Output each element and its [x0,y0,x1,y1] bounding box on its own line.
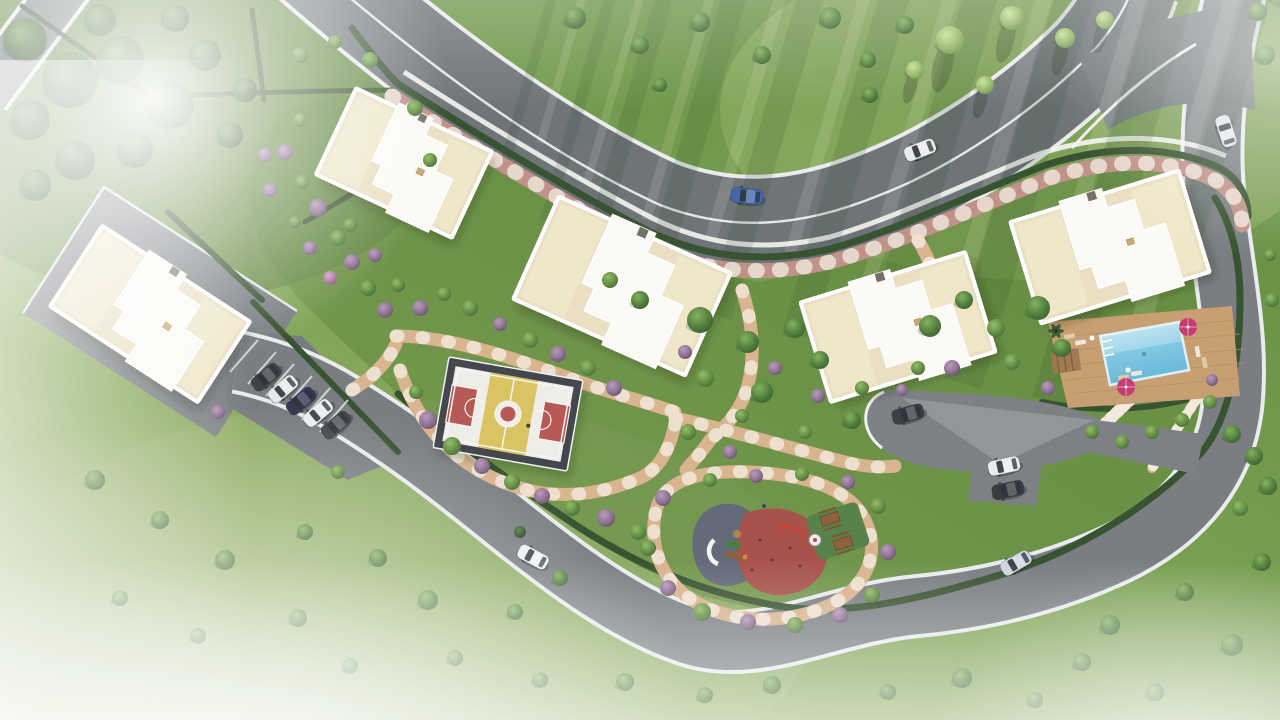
bush [696,369,714,387]
flowering-bush [1206,374,1218,386]
flowering-bush [534,488,550,504]
tree [843,411,861,429]
bush [870,498,886,514]
tree [1245,447,1263,465]
tree [1096,11,1114,29]
tree [653,78,667,92]
flowering-bush [880,544,896,560]
tree [1100,615,1120,635]
tree [862,87,878,103]
flowering-bush [597,509,615,527]
side-table [1126,368,1131,373]
tree [151,511,169,529]
tree [418,590,438,610]
bush [735,409,749,423]
flowering-bush [368,248,382,262]
bush [693,603,711,621]
tree [1249,3,1267,21]
bush [1085,425,1099,439]
bush [295,175,309,189]
bush [293,113,307,127]
tree [1223,425,1241,443]
bush [1115,435,1129,449]
flowering-bush [377,302,393,318]
bush [911,361,925,375]
tree [96,36,144,84]
bush [987,319,1005,337]
bush [437,287,451,301]
tree [1259,477,1277,495]
bush [798,425,812,439]
bush [640,540,656,556]
bush [787,617,803,633]
flowering-bush [493,317,507,331]
tree [117,132,153,168]
tree [289,609,307,627]
tree [369,549,387,567]
flowering-bush [832,607,848,623]
tree [507,604,523,620]
bush [522,332,538,348]
tree [190,628,206,644]
bush [1004,354,1020,370]
flowering-bush [723,445,737,459]
tree [785,318,805,338]
tree [42,52,98,108]
flowering-bush [678,345,692,359]
tree [146,81,194,129]
aerial-site-plan [0,0,1280,720]
bush [1265,293,1279,307]
tree [976,76,994,94]
bush [1203,395,1217,409]
side-table [1090,336,1095,341]
flowering-bush [550,346,566,362]
tree [697,687,713,703]
bush [328,35,342,49]
bush [602,272,618,288]
tree [737,331,759,353]
tree [1253,553,1271,571]
umbrella [1117,378,1135,396]
tree [3,18,47,62]
tree [631,291,649,309]
tree [532,672,548,688]
flowering-bush [655,490,671,506]
flowering-bush [1041,381,1055,395]
bush [564,500,580,516]
tree [112,590,128,606]
bush [289,216,301,228]
car-mirror [738,203,741,205]
flowering-bush [749,469,763,483]
tree [616,673,634,691]
tree [1026,296,1050,320]
tree [880,684,896,700]
bush [407,100,423,116]
tree [936,26,964,54]
bush [795,467,809,481]
tree [233,78,257,102]
tree [751,381,773,403]
tree [1221,634,1243,656]
bush [1145,425,1159,439]
tree [896,16,914,34]
tree [1255,45,1275,65]
flowering-bush [841,475,855,489]
tree [1055,28,1075,48]
tree [85,470,105,490]
tree [919,315,941,337]
bush [362,52,378,68]
scene-svg [0,0,1280,720]
tree [952,668,972,688]
tree [84,4,116,36]
bush [855,381,869,395]
tree [860,52,876,68]
bush [331,465,345,479]
flowering-bush [277,144,293,160]
tree [819,7,841,29]
bush [360,280,376,296]
umbrella [1179,318,1197,336]
bush [504,474,520,490]
play-tower-roof [733,530,741,538]
flowering-bush [263,183,277,197]
flowering-bush [303,241,317,255]
tree [297,524,313,540]
bush [703,473,717,487]
bush [391,278,405,292]
flowering-bush [740,614,756,630]
tree [19,169,51,201]
flowering-bush [258,148,272,162]
tree [811,351,829,369]
tree [552,570,568,586]
tree [1073,653,1091,671]
bush [864,587,880,603]
car-roof [745,189,755,203]
bush [443,437,461,455]
bush [580,360,596,376]
bush [462,300,478,316]
bush [343,218,357,232]
flowering-bush [419,411,437,429]
bush [330,230,346,246]
tree [189,39,221,71]
bush [423,153,437,167]
tree [161,4,189,32]
tree [906,61,924,79]
flowering-bush [474,458,490,474]
flowering-bush [344,254,360,270]
tree [1000,6,1024,30]
flowering-bush [323,271,337,285]
bush [514,526,526,538]
tree [687,307,713,333]
bush [1175,413,1189,427]
bush [680,424,696,440]
tree [690,12,710,32]
bush [630,524,646,540]
tree [342,658,358,674]
bush [292,47,308,63]
bush [1232,500,1248,516]
person [762,504,766,508]
flowering-bush [660,580,676,596]
car-windshield [739,189,746,202]
tree [955,291,973,309]
flowering-bush [811,389,825,403]
tree [631,36,649,54]
tree [10,100,50,140]
tree [564,7,586,29]
flowering-bush [211,405,225,419]
flowering-bush [768,361,782,375]
flowering-bush [309,199,327,217]
tree [763,676,781,694]
tree [217,122,243,148]
flowering-bush [944,360,960,376]
tree [447,650,463,666]
flowering-bush [412,300,428,316]
play-detail [743,555,748,560]
tree [55,140,95,180]
flowering-bush [606,380,622,396]
bush [409,385,423,399]
car-mirror [740,186,743,188]
tree [1176,583,1194,601]
tree [1146,683,1164,701]
tree [215,550,235,570]
bush [1264,249,1276,261]
tree [1053,339,1071,357]
flowering-bush [896,384,908,396]
tree [753,46,771,64]
tree [1027,692,1043,708]
